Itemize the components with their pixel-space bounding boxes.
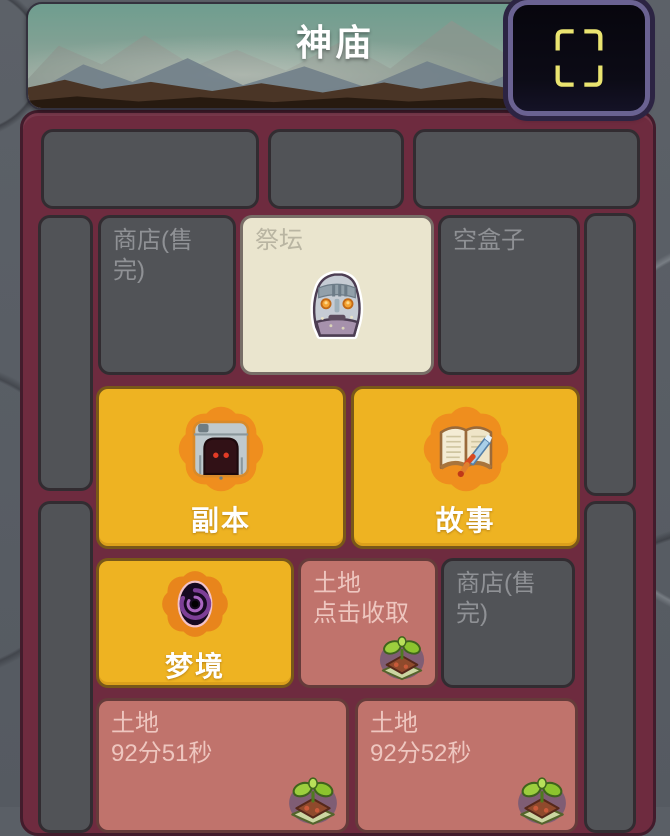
tile-shop-soldout-top[interactable]: 商店(售完): [98, 215, 236, 375]
book-sword-icon: [414, 397, 518, 501]
map-cell-partial-left-1: [38, 215, 93, 491]
tile-label: 副本: [191, 499, 251, 539]
tile-land-ready[interactable]: 土地 点击收取: [298, 558, 438, 688]
sprout-icon: [515, 774, 569, 828]
tile-land-timer-2[interactable]: 土地 92分52秒: [355, 698, 578, 833]
tile-label: 空盒子: [441, 218, 577, 264]
land-label: 土地: [111, 710, 159, 737]
map-cell-empty-3: [413, 129, 640, 209]
tile-label: 商店(售完): [101, 218, 233, 294]
tile-label: 故事: [435, 499, 495, 539]
tile-story[interactable]: 故事: [351, 386, 580, 549]
map-cell-empty-2: [268, 129, 404, 209]
tile-dream[interactable]: 梦境: [96, 558, 294, 688]
tile-land-timer-1[interactable]: 土地 92分51秒: [96, 698, 349, 833]
cave-icon: [169, 397, 273, 501]
map-cell-empty-1: [41, 129, 259, 209]
sprout-icon: [286, 774, 340, 828]
tile-shop-soldout-mid[interactable]: 商店(售完): [441, 558, 575, 688]
tile-dungeon[interactable]: 副本: [96, 386, 346, 549]
map-cell-partial-right-1: [584, 213, 636, 496]
tile-label: 梦境: [165, 645, 225, 685]
land-label: 土地: [313, 570, 361, 597]
tile-label: 祭坛: [243, 218, 431, 264]
tile-label: 土地 92分52秒: [358, 701, 575, 777]
temple-map-panel: 商店(售完) 祭坛: [20, 110, 656, 836]
land-timer: 92分52秒: [370, 740, 471, 767]
tile-altar[interactable]: 祭坛: [240, 215, 434, 375]
frame-brackets-icon: [551, 26, 607, 90]
tile-label: 商店(售完): [444, 561, 572, 637]
land-status: 点击收取: [313, 600, 409, 627]
tile-label: 土地 92分51秒: [99, 701, 346, 777]
vortex-icon: [151, 561, 239, 647]
sprout-icon: [377, 633, 427, 683]
statue-icon: [298, 266, 376, 344]
fullscreen-button[interactable]: [508, 0, 650, 116]
land-timer: 92分51秒: [111, 740, 212, 767]
map-cell-partial-right-2: [584, 501, 636, 833]
tile-label: 土地 点击收取: [301, 561, 435, 637]
tile-empty-box[interactable]: 空盒子: [438, 215, 580, 375]
map-cell-partial-left-2: [38, 501, 93, 833]
land-label: 土地: [370, 710, 418, 737]
